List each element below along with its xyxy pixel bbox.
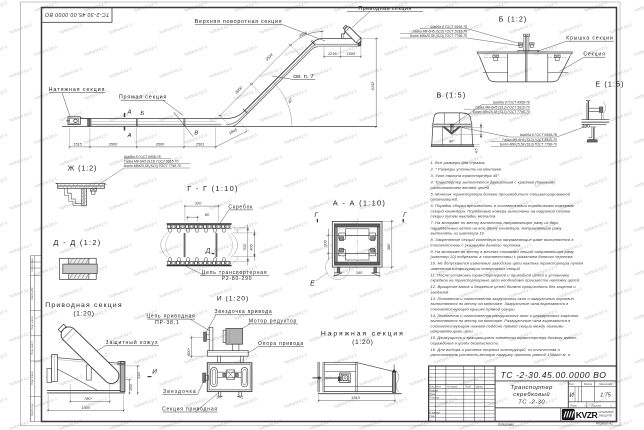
svg-text:4. Транспортер выполняется дв: 4. Транспортер выполняется двухцепным с … [431,180,556,185]
svg-text:выполняются по месту на монтаж: выполняются по месту на монтаже. Загрузо… [431,301,569,306]
svg-text:Секция: Секция [583,52,605,58]
svg-text:Болт М8х25,58 (S13) ГОСТ 7798: Болт М8х25,58 (S13) ГОСТ 7798-70 [410,34,467,38]
svg-text:А - А (1:10): А - А (1:10) [333,198,386,207]
svg-text:Прямая секция: Прямая секция [119,95,167,101]
svg-text:Приводная секция: Приводная секция [45,302,122,309]
svg-text:Подп.: Подп. [465,386,472,389]
svg-text:А: А [127,133,132,139]
svg-text:Болт М8х25,58 (S13) ГОСТ 7798: Болт М8х25,58 (S13) ГОСТ 7798-70 [473,110,530,114]
svg-text:секции путем накладки металла.: секции путем накладки металла. [431,214,497,219]
svg-text:скребков на транспортерные цеп: скребков на транспортерные цепи необходи… [431,278,581,283]
svg-text:В (1:5): В (1:5) [437,91,467,100]
svg-text:Б (1:2): Б (1:2) [499,15,528,24]
svg-text:Б: Б [140,111,144,117]
svg-text:Натяжная секция: Натяжная секция [49,87,106,93]
svg-text:организацией.: организацией. [431,197,459,202]
svg-text:соответствующей крышке прямой: соответствующей крышке прямой секции. [431,306,516,311]
svg-text:Масштаб: Масштаб [599,382,612,386]
svg-text:соответствующем нижнем поддоне: соответствующем нижнем поддоне прямой се… [431,323,565,328]
svg-text:изменения конфигурации поворот: изменения конфигурации поворотных секций [431,266,521,271]
svg-text:Разраб.: Разраб. [429,388,439,392]
svg-text:3. Угол наклона транспортёра: 3. Угол наклона транспортёра 45°. [431,173,501,178]
svg-text:Защитный кожух: Защитный кожух [106,339,159,346]
svg-text:KVZR: KVZR [576,410,599,420]
svg-text:Согласовано: Согласовано [32,257,34,272]
svg-text:Гайка М8-6Н5 (S13) ГОСТ 5915-: Гайка М8-6Н5 (S13) ГОСТ 5915-70 [502,138,556,142]
svg-text:Гайка М8-6Н5 (S13) ГОСТ 5915-: Гайка М8-6Н5 (S13) ГОСТ 5915-70 [413,30,467,34]
svg-text:Приводная секция: Приводная секция [358,6,411,12]
svg-text:Масса: Масса [584,382,592,386]
svg-text:ТС -2-30: ТС -2-30 [518,399,545,405]
svg-text:Верхняя поворотная секция: Верхняя поворотная секция [195,19,283,25]
svg-text:200: 200 [323,239,328,247]
svg-text:Инв.N дубл.: Инв.N дубл. [32,286,34,299]
svg-text:1515: 1515 [73,141,82,146]
svg-text:№ докум.: № докум. [447,386,458,389]
svg-text:320: 320 [195,200,202,205]
svg-text:Д - Д (1:2): Д - Д (1:2) [53,238,101,247]
svg-text:1515: 1515 [351,395,360,400]
svg-text:Р2-80-290: Р2-80-290 [222,276,253,282]
svg-text:4,5: 4,5 [474,148,478,153]
svg-text:Н.контр.: Н.контр. [429,410,440,414]
svg-text:Е: Е [310,281,315,288]
svg-text:Лит.: Лит. [567,382,575,386]
svg-text:И: И [152,369,157,376]
svg-text:3500: 3500 [156,141,165,146]
svg-text:Пров.: Пров. [429,392,436,396]
svg-text:13. Положения и изготовления: 13. Положения и изготовления загрузочных… [431,296,575,301]
svg-text:Шайба 8 ГОСТ 6958-78: Шайба 8 ГОСТ 6958-78 [124,155,161,159]
svg-text:Наряжная секция: Наряжная секция [321,331,405,338]
svg-text:Копировал: Копировал [498,423,514,427]
svg-text:расположением ветвей цепей.: расположением ветвей цепей. [430,185,491,190]
svg-text:расположения расчетно-весовую: расположения расчетно-весовую нагрузку п… [430,352,572,357]
svg-text:Гайка М8-6Н5 (S13) ГОСТ 5915-: Гайка М8-6Н5 (S13) ГОСТ 5915-70 [475,105,529,109]
svg-text:16. Для выбора и расчета опор: 16. Для выбора и расчета опорных констру… [431,347,561,352]
svg-text:Подп. и дата: Подп. и дата [32,316,34,330]
svg-text:Секция приводная: Секция приводная [162,406,218,412]
svg-text:выполнять из швеллера 10: выполнять из швеллера 10 [431,231,485,236]
svg-text:Т.контр.: Т.контр. [429,396,440,400]
svg-text:1500: 1500 [81,405,90,410]
svg-text:Цепь приводная: Цепь приводная [146,314,195,320]
svg-text:780*: 780* [84,396,92,401]
svg-text:Болт М8х25,58 (S13) ГОСТ 7798: Болт М8х25,58 (S13) ГОСТ 7798-70 [500,143,557,147]
svg-text:Е (1:5): Е (1:5) [595,80,624,89]
svg-text:(1:20): (1:20) [73,311,94,318]
svg-text:3500: 3500 [109,141,118,146]
svg-text:Ж (1:2): Ж (1:2) [68,164,98,173]
svg-text:Звездочка: Звездочка [163,389,197,395]
svg-text:Шайба 8 ГОСТ 6958-78: Шайба 8 ГОСТ 6958-78 [430,25,467,29]
svg-text:А: А [127,110,132,116]
svg-text:параллельных веток на всю длин: параллельных веток на всю длину конвейер… [431,225,563,230]
svg-text:11. После установки транспорт: 11. После установки транспортерной и при… [431,272,570,277]
svg-text:скребковый: скребковый [513,391,550,398]
svg-text:Подп. и дата: Подп. и дата [32,371,34,385]
svg-text:380: 380 [386,243,391,250]
svg-text:9. На монтаже по месту в мест: 9. На монтаже по месту в местах стыковки… [431,249,575,254]
svg-text:Гайка М8-6Н5 (S13) ГОСТ 5915-: Гайка М8-6Н5 (S13) ГОСТ 5915-70 [124,160,178,164]
svg-text:8. Закрепление секций конвейе: 8. Закрепление секций конвейера на напра… [431,237,574,242]
svg-text:ТС -2-30.45.00.0000 ВО: ТС -2-30.45.00.0000 ВО [500,370,606,380]
svg-text:14. Положения и изготовления: 14. Положения и изготовления разгрузочны… [431,313,580,318]
svg-text:Формат А2: Формат А2 [596,421,614,425]
svg-text:Шайба 8 ГОСТ 6958-78: Шайба 8 ГОСТ 6958-78 [493,101,530,105]
svg-text:90°: 90° [449,140,455,144]
svg-text:направляющими цепи.: направляющими цепи. [431,329,474,334]
svg-text:7. На монтаже по месту выполн: 7. На монтаже по месту выполнить направл… [431,220,560,225]
svg-text:Шайба 8 ГОСТ 6958-78: Шайба 8 ГОСТ 6958-78 [520,133,557,137]
svg-text:заеданий.: заеданий. [430,289,450,294]
svg-text:Транспортер: Транспортер [511,385,554,391]
svg-text:Г - Г (1:10): Г - Г (1:10) [187,184,239,193]
svg-text:В: В [194,130,198,136]
svg-text:15. Движущиеся и вращающиеся: 15. Движущиеся и вращающиеся элементы тр… [431,335,577,340]
svg-text:10. Не допускается изменение: 10. Не допускается изменение заводские ц… [431,261,584,266]
svg-text:(1:20): (1:20) [352,339,373,346]
svg-text:Инв.N подл.: Инв.N подл. [32,402,34,415]
svg-text:Изм.Лист: Изм.Лист [429,386,441,389]
svg-text:ПР-38,1: ПР-38,1 [155,320,180,326]
svg-text:Д: Д [205,248,211,255]
svg-text:Крышка секции: Крышка секции [566,36,613,42]
svg-text:340: 340 [356,270,363,275]
svg-text:5. Монтаж транспортера должен: 5. Монтаж транспортера должен производит… [431,191,571,196]
svg-text:Листов: Листов [590,403,601,407]
svg-text:выполняются по месту на монтаж: выполняются по месту на монтаже. Разгруз… [431,318,571,323]
svg-text:ЗАВОД РЭП: ЗАВОД РЭП [599,415,613,418]
svg-text:1. Все размеры для справок.: 1. Все размеры для справок. [431,160,486,165]
svg-text:12. Вращение валов и движение: 12. Вращение валов и движение цепей долж… [431,284,577,289]
svg-text:Звездочка привода: Звездочка привода [215,309,273,315]
svg-text:800*: 800* [186,348,191,356]
svg-text:1216: 1216 [328,51,337,56]
svg-text:секций конвейера. Порядковые н: секций конвейера. Порядковые номера выпо… [431,208,571,213]
svg-text:6102: 6102 [370,81,375,90]
svg-text:Опора привода: Опора привода [258,341,304,347]
svg-text:Взам. инв.N: Взам. инв.N [32,341,34,354]
svg-text:соответствии с указанием данно: соответствии с указанием данного чертежа… [431,242,522,247]
svg-text:(швеллер 10) подрезать в соотв: (швеллер 10) подрезать в соответствии с … [431,254,574,259]
svg-text:540: 540 [136,371,141,378]
svg-text:см. п. 7: см. п. 7 [293,74,314,80]
svg-text:1505: 1505 [347,51,356,56]
svg-text:Мотор редуктор: Мотор редуктор [249,318,297,324]
svg-text:Лист: Лист [569,403,578,407]
svg-text:Утв.: Утв. [429,414,435,418]
svg-text:И (1:20): И (1:20) [217,295,250,302]
svg-text:400: 400 [248,243,253,250]
svg-text:Дата: Дата [475,386,483,389]
svg-text:Скребок: Скребок [228,204,253,210]
svg-text:ТС-2-30.45.00.0000 ВО: ТС-2-30.45.00.0000 ВО [45,11,110,17]
svg-text:265: 265 [128,383,133,391]
svg-text:2. * Размеры уточнить на монт: 2. * Размеры уточнить на монтаже. [430,167,503,172]
svg-text:1:75: 1:75 [600,392,611,398]
svg-text:700: 700 [242,243,247,250]
svg-text:6. Порядок сборки производить: 6. Порядок сборки производить в соответс… [431,203,576,208]
svg-text:ограждения в целях безопасност: ограждения в целях безопасности. [431,340,500,345]
svg-text:Болт М8х25,58 (S13) ГОСТ 7798: Болт М8х25,58 (S13) ГОСТ 7798-70 [124,164,181,168]
svg-text:И: И [569,392,574,399]
svg-text:2501: 2501 [195,141,205,146]
